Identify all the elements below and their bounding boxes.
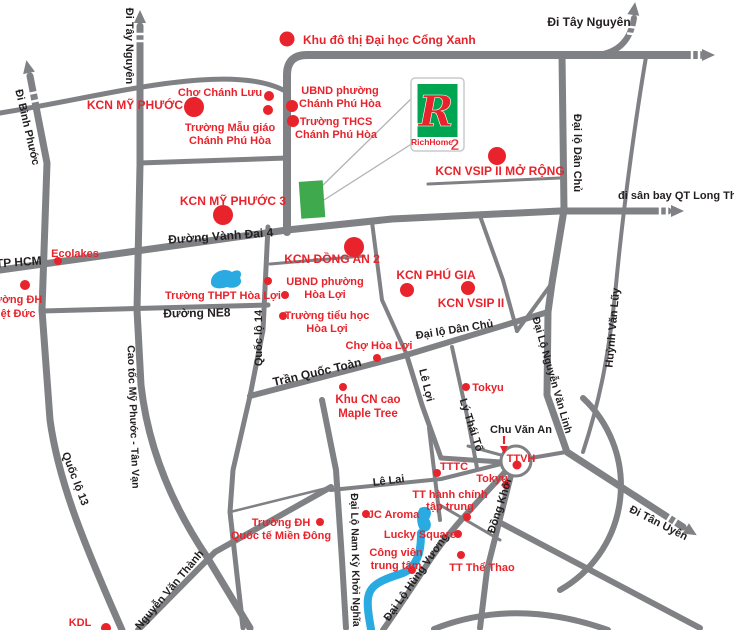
poi-label: KDL (69, 617, 92, 629)
poi-label: Trường ĐHQuốc tế Miền Đông (231, 517, 331, 542)
road-segment (42, 305, 268, 311)
road-segment (548, 55, 564, 312)
poi-label: TTTC (440, 461, 468, 473)
map-svg: Đi Tây NguyênĐi Bình PhướcĐi Tây Nguyênđ… (0, 0, 734, 630)
poi-label: Trường tiểu họcHòa Lợi (285, 310, 370, 335)
poi-dot (286, 100, 298, 112)
poi-label: Trường ĐHViệt Đức (0, 294, 42, 320)
poi-dot (488, 147, 506, 165)
poi-label: Trường THPT Hòa Lợi (165, 290, 281, 302)
poi-label: IJC Aroma (365, 509, 420, 521)
road-segment (531, 452, 566, 458)
logo-r-icon: R (418, 87, 454, 136)
poi-label: Công viêntrung tâm (369, 547, 422, 572)
road-label: đi sân bay QT Long Thành (618, 190, 734, 202)
poi-dot (281, 291, 289, 299)
road-segment (322, 400, 346, 628)
project-site-block (299, 180, 326, 219)
poi-dot (263, 105, 273, 115)
poi-label: Lucky Square (384, 529, 456, 541)
poi-dot (461, 281, 475, 295)
poi-label: TT Thể Thao (449, 562, 515, 574)
road-arrow-icon (20, 59, 34, 74)
road-label: Đường Vành Đai 4 (168, 225, 274, 246)
poi-label: Khu CN caoMaple Tree (335, 394, 400, 420)
poi-label: TTVH (507, 453, 536, 465)
road-arrow-icon (627, 1, 641, 16)
poi-dot (400, 283, 414, 297)
road-segment (287, 55, 700, 232)
poi-dot (213, 205, 233, 225)
road-label: Đường NE8 (163, 305, 231, 320)
road-segment (434, 613, 608, 630)
road-hash-mark (627, 33, 637, 34)
poi-dot (264, 91, 274, 101)
poi-dot (457, 551, 465, 559)
poi-dot (463, 513, 471, 521)
richhome-logo: R RichHome 2 (411, 78, 464, 154)
road-arrow-icon (671, 205, 684, 217)
poi-dot (339, 383, 347, 391)
water-body (211, 270, 241, 288)
road-label: Đại lộ Dân Chủ (571, 114, 583, 192)
road-segment (583, 57, 646, 452)
poi-label: KCN ĐỒNG AN 2 (284, 251, 380, 266)
location-map: Đi Tây NguyênĐi Bình PhướcĐi Tây Nguyênđ… (0, 0, 734, 630)
road-segment (139, 158, 287, 163)
road-arrow-icon (702, 49, 715, 61)
poi-dot (101, 623, 111, 630)
callouts-layer (322, 97, 413, 200)
road-label: Quốc lộ 14 (253, 309, 265, 366)
poi-label: Trường Mẫu giáoChánh Phú Hòa (185, 121, 276, 147)
poi-label: Ecolakes (51, 248, 99, 260)
road-label: Huỳnh Văn Lũy (604, 286, 623, 368)
poi-label: KCN MỸ PHƯỚC 3 (180, 193, 287, 208)
road-segment (230, 487, 331, 512)
labels-layer: Đi Tây NguyênĐi Bình PhướcĐi Tây Nguyênđ… (0, 8, 734, 630)
road-segment (428, 178, 560, 184)
poi-label: UBND phườngHòa Lợi (286, 276, 364, 301)
logo-brand-text: RichHome (411, 137, 453, 147)
poi-dot (280, 32, 295, 47)
road-label: Nguyễn Văn Thành (132, 547, 206, 630)
road-segment (30, 76, 122, 630)
poi-label: Tokyu (476, 473, 508, 485)
poi-label: KCN MỸ PHƯỚC 2 (87, 97, 194, 112)
poi-dot (20, 280, 30, 290)
poi-dot (462, 383, 470, 391)
poi-label: KCN PHÚ GIA (396, 267, 476, 282)
road-label: Đi Tây Nguyên (547, 15, 630, 29)
road-label: Chu Văn An (490, 424, 552, 436)
poi-label: KCN VSIP II MỞ RỘNG (435, 163, 564, 178)
poi-dot (264, 277, 272, 285)
poi-label: Trường THCSChánh Phú Hòa (295, 116, 378, 141)
poi-dot (316, 518, 324, 526)
poi-dot (373, 354, 381, 362)
site-layer (299, 180, 326, 219)
poi-label: Chợ Hòa Lợi (346, 340, 413, 352)
poi-label: UBND phườngChánh Phú Hòa (299, 85, 382, 110)
poi-label: Khu đô thị Đại học Cổng Xanh (303, 33, 476, 47)
road-label: Đại Lộ Nam Kỳ Khởi Nghĩa (348, 493, 362, 627)
poi-label: Tokyu (472, 382, 504, 394)
road-segment (480, 216, 517, 331)
road-label: Lê Lai (372, 473, 405, 489)
poi-dot (287, 115, 299, 127)
logo-number-text: 2 (451, 137, 460, 154)
road-label: Đi Tây Nguyên (123, 8, 135, 85)
poi-label: KCN VSIP II (438, 296, 504, 310)
